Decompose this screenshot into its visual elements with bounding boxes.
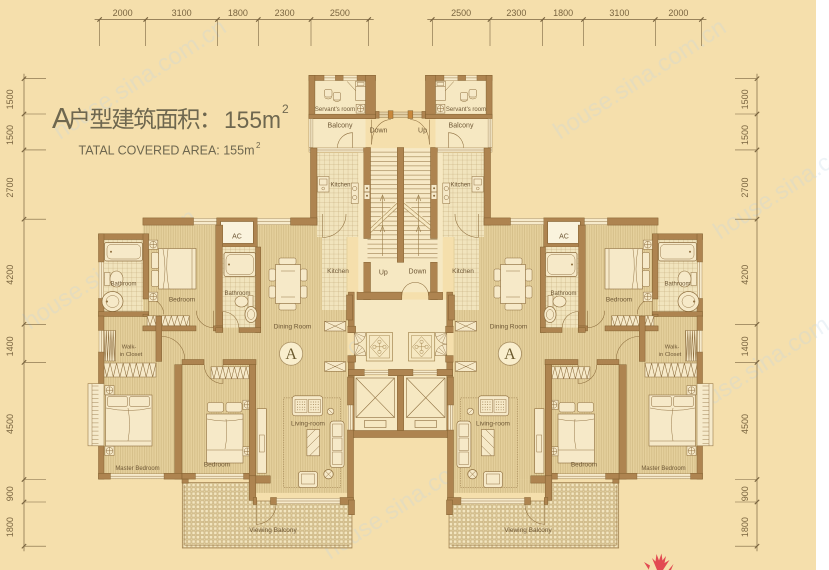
svg-text:Master Bedroom: Master Bedroom xyxy=(115,466,159,472)
svg-text:Living-room: Living-room xyxy=(291,421,325,428)
svg-text:Servant's room: Servant's room xyxy=(446,107,486,113)
svg-text:1800: 1800 xyxy=(740,517,750,537)
svg-text:Bathroom: Bathroom xyxy=(224,291,250,297)
svg-text:1500: 1500 xyxy=(5,89,15,109)
svg-text:2300: 2300 xyxy=(275,8,295,18)
svg-text:3100: 3100 xyxy=(609,8,629,18)
svg-text:Up: Up xyxy=(379,270,388,277)
svg-text:Bathroom: Bathroom xyxy=(664,282,690,288)
svg-text:Balcony: Balcony xyxy=(449,123,474,130)
svg-text:Servant's room: Servant's room xyxy=(315,107,355,113)
svg-text:Dining Room: Dining Room xyxy=(274,324,312,331)
svg-text:Down: Down xyxy=(370,128,388,135)
svg-text:in Closet: in Closet xyxy=(120,352,143,358)
svg-text:Balcony: Balcony xyxy=(328,123,353,130)
svg-text:Bedroom: Bedroom xyxy=(169,297,195,304)
svg-text:A: A xyxy=(285,346,297,363)
svg-text:TATAL COVERED AREA: 155m: TATAL COVERED AREA: 155m xyxy=(79,143,255,158)
svg-text:Walk-: Walk- xyxy=(122,345,137,351)
svg-text:4500: 4500 xyxy=(5,414,15,434)
svg-text:Walk-: Walk- xyxy=(665,345,680,351)
svg-text:2: 2 xyxy=(256,141,261,150)
svg-text:4200: 4200 xyxy=(5,265,15,285)
svg-text:1800: 1800 xyxy=(228,8,248,18)
svg-text:4500: 4500 xyxy=(740,414,750,434)
svg-text:2700: 2700 xyxy=(5,178,15,198)
svg-text:155m: 155m xyxy=(224,107,281,134)
svg-text:1400: 1400 xyxy=(5,336,15,356)
svg-text:Up: Up xyxy=(418,128,427,135)
svg-text:4200: 4200 xyxy=(740,265,750,285)
svg-text:Kitchen: Kitchen xyxy=(327,268,349,275)
svg-text:2500: 2500 xyxy=(330,8,350,18)
svg-text:AC: AC xyxy=(232,234,242,241)
svg-text:2: 2 xyxy=(282,102,289,116)
svg-text:in Closet: in Closet xyxy=(659,352,682,358)
svg-text:2500: 2500 xyxy=(451,8,471,18)
svg-text:Kitchen: Kitchen xyxy=(330,183,350,189)
svg-text:A: A xyxy=(504,346,516,363)
svg-text:Bathroom: Bathroom xyxy=(110,282,136,288)
svg-text:1800: 1800 xyxy=(5,517,15,537)
svg-text:900: 900 xyxy=(740,486,750,501)
svg-text:Kitchen: Kitchen xyxy=(450,183,470,189)
svg-text:2700: 2700 xyxy=(740,178,750,198)
svg-text:Master Bedroom: Master Bedroom xyxy=(641,466,685,472)
svg-text:AC: AC xyxy=(559,234,569,241)
svg-text:1400: 1400 xyxy=(740,336,750,356)
svg-text:A: A xyxy=(52,103,72,135)
svg-text:2000: 2000 xyxy=(668,8,688,18)
svg-text:2300: 2300 xyxy=(506,8,526,18)
svg-text:Living-room: Living-room xyxy=(476,421,510,428)
svg-text:Kitchen: Kitchen xyxy=(452,268,474,275)
svg-text:Down: Down xyxy=(409,269,427,276)
svg-text:Bedroom: Bedroom xyxy=(571,462,597,469)
svg-text:Viewing Balcony: Viewing Balcony xyxy=(504,527,552,534)
svg-text:3100: 3100 xyxy=(172,8,192,18)
svg-text:Bathroom: Bathroom xyxy=(550,291,576,297)
svg-text:900: 900 xyxy=(5,486,15,501)
svg-text:Bedroom: Bedroom xyxy=(606,297,632,304)
svg-text:Dining Room: Dining Room xyxy=(490,324,528,331)
svg-text:Viewing Balcony: Viewing Balcony xyxy=(249,527,297,534)
svg-text:Bedroom: Bedroom xyxy=(204,462,230,469)
svg-text:2000: 2000 xyxy=(113,8,133,18)
svg-text:1500: 1500 xyxy=(740,125,750,145)
svg-text:1500: 1500 xyxy=(740,89,750,109)
svg-text:1500: 1500 xyxy=(5,125,15,145)
svg-text:1800: 1800 xyxy=(553,8,573,18)
